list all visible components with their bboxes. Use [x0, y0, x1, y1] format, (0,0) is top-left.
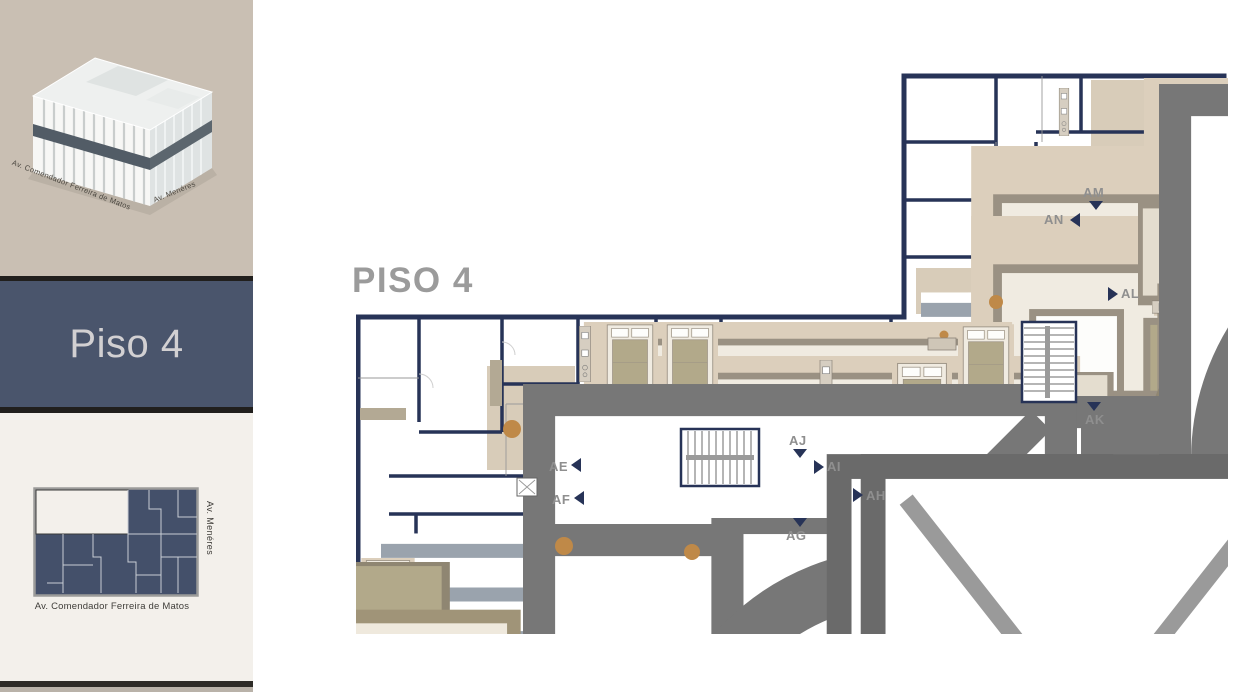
- street-label-vertical: Av. Menéres: [205, 501, 215, 555]
- unit-label-AL: AL: [1121, 286, 1139, 301]
- unit-label-AE: AE: [549, 459, 568, 474]
- footer-strip-gray: [0, 687, 253, 692]
- site-plan-panel: Av. Menéres Av. Comendador Ferreira de M…: [0, 413, 253, 681]
- unit-label-AF: AF: [552, 492, 570, 507]
- unit-label-AH: AH: [866, 488, 886, 503]
- sidebar: Av. Comendador Ferreira de Matos Av. Men…: [0, 0, 253, 692]
- site-key-plan: [33, 487, 199, 597]
- building-isometric: [0, 0, 253, 276]
- site-plan-caption: Av. Comendador Ferreira de Matos: [6, 601, 218, 612]
- floor-band: Piso 4: [0, 281, 253, 407]
- unit-label-AG: AG: [786, 528, 807, 543]
- building-render-panel: Av. Comendador Ferreira de Matos Av. Men…: [0, 0, 253, 276]
- desk: [928, 338, 956, 350]
- page: Av. Comendador Ferreira de Matos Av. Men…: [0, 0, 1248, 692]
- unit-label-AM: AM: [1083, 185, 1104, 200]
- unit-label-AK: AK: [1085, 412, 1105, 427]
- floor-plan: AE AF AG AH AI AJ AK AL AM AN: [356, 72, 1228, 634]
- unit-label-AJ: AJ: [789, 433, 807, 448]
- floor-band-label: Piso 4: [69, 322, 183, 367]
- staircase-wing: [1022, 322, 1076, 402]
- staircase-main: [681, 429, 759, 486]
- unit-label-AN: AN: [1044, 212, 1064, 227]
- unit-label-AI: AI: [827, 459, 841, 474]
